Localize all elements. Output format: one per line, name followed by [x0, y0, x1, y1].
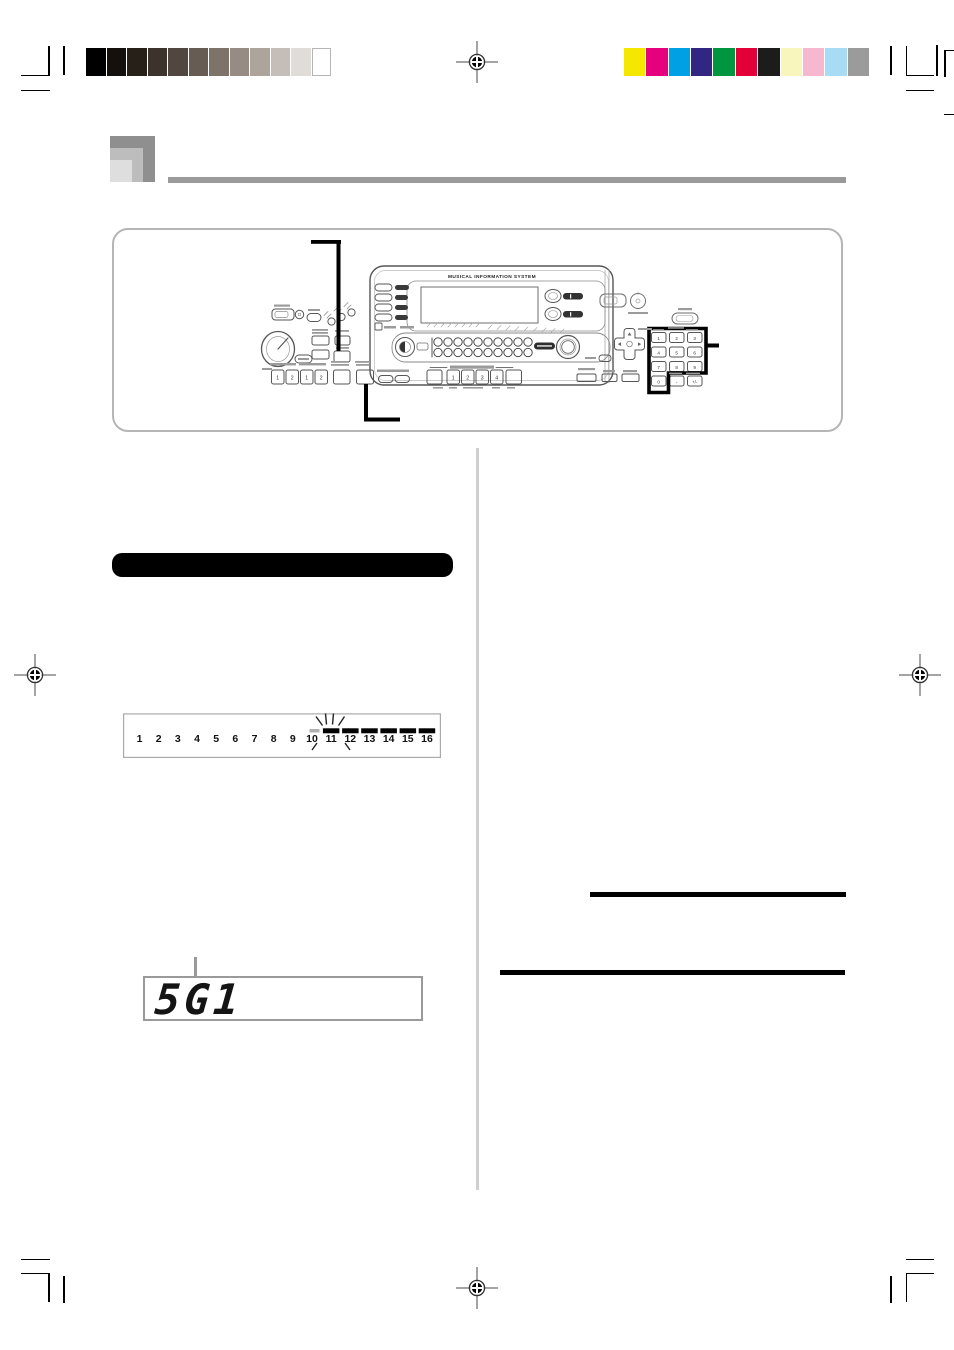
svg-text:2: 2	[675, 336, 678, 341]
color-calibration-bar	[624, 48, 869, 76]
gray-swatch	[209, 48, 229, 76]
registration-mark-top	[455, 40, 499, 84]
svg-text:4: 4	[194, 733, 200, 745]
svg-text:1: 1	[305, 376, 308, 382]
svg-text:3: 3	[481, 376, 484, 382]
svg-text:2: 2	[320, 376, 323, 382]
color-swatch	[646, 48, 667, 76]
color-swatch	[691, 48, 712, 76]
svg-text:11: 11	[326, 733, 337, 745]
svg-text:1: 1	[452, 376, 455, 382]
svg-text:3: 3	[175, 733, 181, 745]
svg-text:-: -	[676, 379, 678, 384]
mode-dial	[262, 332, 313, 367]
gray-swatch	[189, 48, 209, 76]
lcd-display-box: 5G1	[143, 976, 423, 1021]
svg-text:1: 1	[137, 733, 143, 745]
gray-swatch	[168, 48, 188, 76]
svg-text:4: 4	[657, 350, 660, 355]
color-swatch	[758, 48, 779, 76]
gray-swatch	[291, 48, 311, 76]
svg-text:7: 7	[657, 365, 660, 370]
manual-page: MUSICAL INFORMATION SYSTEM	[0, 0, 954, 1350]
demo-pill-button	[672, 313, 698, 324]
display-cluster	[407, 281, 605, 331]
registration-mark-left	[13, 653, 57, 697]
color-swatch	[825, 48, 846, 76]
right-column-rule-2	[500, 970, 845, 975]
svg-text:8: 8	[675, 365, 678, 370]
registration-mark-right	[898, 653, 942, 697]
keypad-digits: 1 2 3 4 5 6 7 8 9 0 - +/-	[657, 336, 697, 385]
svg-text:4: 4	[495, 376, 498, 382]
display-right-sliders	[545, 290, 583, 321]
cursor-dpad	[615, 329, 645, 360]
gray-swatch	[271, 48, 291, 76]
callout-target-button-top	[334, 351, 350, 362]
section-header-bar	[112, 553, 453, 577]
column-divider	[476, 448, 479, 1190]
pad-strip	[392, 333, 610, 362]
keyboard-console-diagram: MUSICAL INFORMATION SYSTEM	[112, 228, 843, 432]
svg-text:7: 7	[252, 733, 258, 745]
lcd-callout-line	[194, 957, 197, 976]
right-column-rule-1	[590, 892, 846, 897]
header-rule	[168, 177, 846, 183]
gray-swatch	[148, 48, 168, 76]
gray-swatch	[230, 48, 250, 76]
svg-text:12: 12	[344, 733, 356, 745]
color-swatch	[781, 48, 802, 76]
console-brand-text: MUSICAL INFORMATION SYSTEM	[448, 274, 536, 280]
svg-text:1: 1	[657, 336, 660, 341]
grayscale-calibration-bar	[86, 48, 331, 76]
svg-text:+/-: +/-	[692, 379, 698, 384]
registration-mark-bottom	[455, 1266, 499, 1310]
svg-text:8: 8	[271, 733, 277, 745]
lcd-screen	[421, 287, 538, 323]
gray-swatch	[312, 48, 332, 76]
svg-text:9: 9	[290, 733, 296, 745]
svg-text:3: 3	[693, 336, 696, 341]
svg-text:0: 0	[657, 379, 660, 384]
svg-text:5: 5	[675, 350, 678, 355]
left-button-cluster	[312, 336, 350, 362]
color-swatch	[713, 48, 734, 76]
lcd-value: 5G1	[153, 978, 245, 1021]
hatch-fan	[427, 323, 564, 334]
power-button	[272, 309, 304, 320]
svg-text:2: 2	[466, 376, 469, 382]
mode-pill-button	[307, 314, 321, 322]
card-slot	[600, 292, 646, 309]
color-swatch	[803, 48, 824, 76]
svg-text:2: 2	[291, 376, 294, 382]
callout-line-right	[706, 344, 719, 348]
track-indicator-strip: 1 2 3 4 5 6 7 8 9 10 11 12 13 14 15 16	[123, 713, 441, 759]
svg-text:9: 9	[693, 365, 696, 370]
gray-swatch	[86, 48, 106, 76]
gray-swatch	[107, 48, 127, 76]
svg-text:14: 14	[383, 733, 395, 745]
color-swatch	[736, 48, 757, 76]
svg-text:6: 6	[232, 733, 238, 745]
display-left-buttons	[375, 284, 409, 330]
color-swatch	[669, 48, 690, 76]
svg-text:15: 15	[402, 733, 414, 745]
callout-line-bottom	[364, 384, 400, 422]
svg-text:2: 2	[156, 733, 162, 745]
callout-line-top	[311, 240, 341, 351]
color-swatch	[848, 48, 869, 76]
color-swatch	[624, 48, 645, 76]
svg-text:6: 6	[693, 350, 696, 355]
svg-text:16: 16	[421, 733, 433, 745]
gray-swatch	[127, 48, 147, 76]
gray-swatch	[250, 48, 270, 76]
svg-text:1: 1	[276, 376, 279, 382]
svg-text:5: 5	[213, 733, 219, 745]
svg-text:13: 13	[364, 733, 376, 745]
